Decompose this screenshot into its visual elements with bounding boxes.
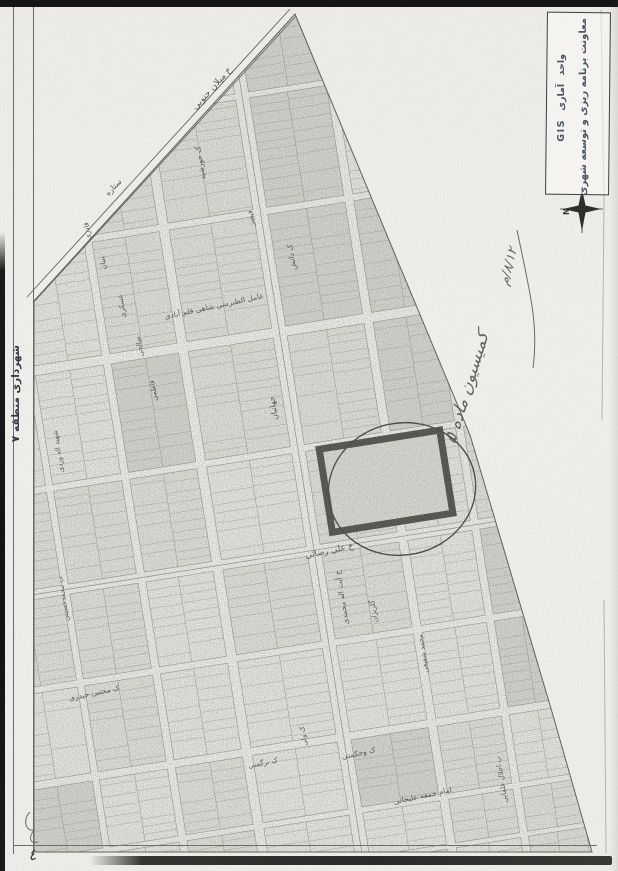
scan-edge-right: [609, 0, 618, 871]
city-map: خ میلان جنوبیستارهک خورشیدقادریبنیانعسکر…: [0, 0, 618, 871]
scanned-map-page: خ میلان جنوبیستارهک خورشیدقادریبنیانعسکر…: [0, 0, 618, 871]
scan-edge-top: [0, 0, 618, 7]
scan-edge-bottom: [90, 856, 612, 865]
paper-grain: [0, 0, 618, 871]
stamp-unit-text: واحد آماری GIS: [556, 54, 567, 172]
district-label: شهرداری منطقه ٧: [10, 345, 22, 473]
scan-edge-left: [0, 232, 5, 871]
stamp-title-text: معاونت برنامه ریزی و توسعه شهری: [578, 18, 589, 190]
